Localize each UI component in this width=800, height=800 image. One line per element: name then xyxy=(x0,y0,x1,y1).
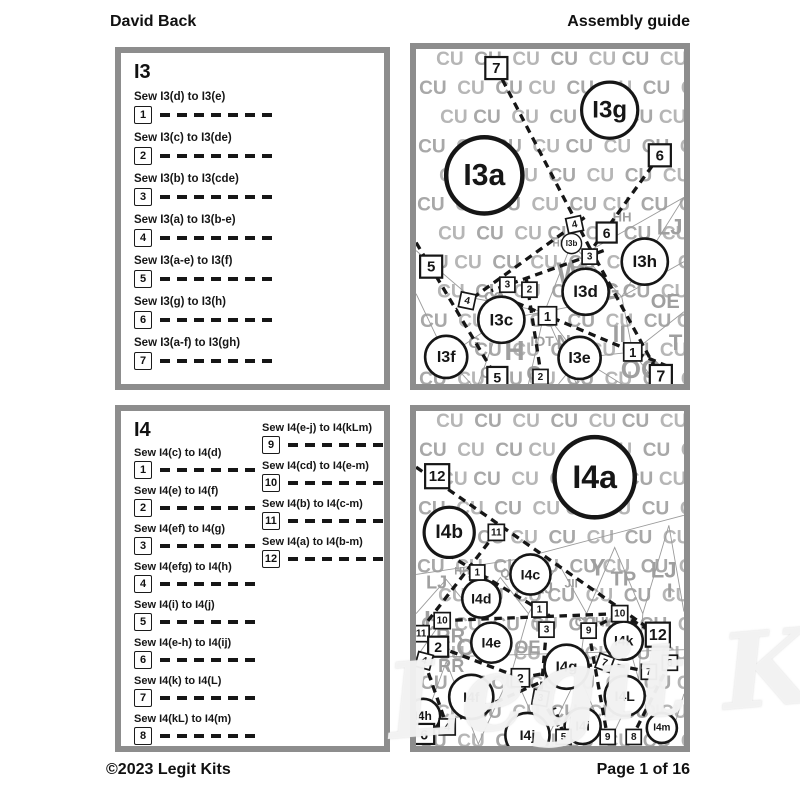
seam-number: 2 xyxy=(434,639,442,655)
bg-pattern-letter: CU xyxy=(549,107,577,128)
step-instruction: Sew I4(i) to I4(j) xyxy=(134,599,262,611)
sew-step: Sew I4(e) to I4(f)2 xyxy=(134,485,262,517)
seam-dash-sample xyxy=(160,582,255,586)
sew-step: Sew I4(cd) to I4(e-m)10 xyxy=(262,460,383,492)
document-title: Assembly guide xyxy=(567,13,690,31)
bg-pattern-letter: CU xyxy=(641,194,669,215)
i4-diagram-panel: CUCUCUCUCUCUCUCUCUCUCUCUCUCUCUCUCUCUCUCU… xyxy=(410,405,690,752)
step-instruction: Sew I3(d) to I3(e) xyxy=(134,91,376,103)
seam-dash-sample xyxy=(160,154,278,158)
seam-dash-sample xyxy=(160,359,278,363)
bg-piece-letter: LJ xyxy=(651,557,677,582)
seam-number-group: 3 xyxy=(500,277,515,292)
step-seam-row: 11 xyxy=(262,512,383,530)
step-seam-row: 5 xyxy=(134,270,376,288)
seam-number: 7 xyxy=(492,60,500,77)
seam-number-group: 1 xyxy=(532,602,547,617)
seam-number-group: 12 xyxy=(425,464,449,488)
i3-piecing-diagram: CUCUCUCUCUCUCUCUCUCUCUCUCUCUCUCUCUCUCUCU… xyxy=(416,49,684,384)
bg-piece-letter: Y xyxy=(590,554,606,581)
seam-number: 3 xyxy=(505,280,511,291)
bg-pattern-letter: CU xyxy=(551,411,579,432)
step-instruction: Sew I4(ef) to I4(g) xyxy=(134,523,262,535)
bg-pattern-letter: CU xyxy=(659,469,684,490)
step-number-box: 12 xyxy=(262,550,280,568)
seam-dash-sample xyxy=(160,236,278,240)
seam-dash-sample xyxy=(160,544,255,548)
bg-pattern-letter: CU xyxy=(457,78,485,99)
bg-pattern-letter: CU xyxy=(681,369,684,384)
sew-step: Sew I4(c) to I4(d)1 xyxy=(134,447,262,479)
bg-pattern-letter: CU xyxy=(476,224,504,245)
seam-number: 2 xyxy=(517,671,524,685)
step-instruction: Sew I4(e) to I4(f) xyxy=(134,485,262,497)
seam-number-group: 3 xyxy=(582,249,597,264)
step-instruction: Sew I3(a-e) to I3(f) xyxy=(134,255,376,267)
step-number-box: 6 xyxy=(134,651,152,669)
step-number-box: 8 xyxy=(134,727,152,745)
seam-number: 8 xyxy=(631,732,637,743)
sew-step: Sew I4(a) to I4(b-m)12 xyxy=(262,536,383,568)
piece-label: I4k xyxy=(614,633,634,649)
seam-number-group: 4 xyxy=(566,216,584,234)
seam-dash-sample xyxy=(160,506,255,510)
seam-number: 7 xyxy=(656,367,665,384)
bg-pattern-letter: CU xyxy=(681,731,684,746)
step-seam-row: 4 xyxy=(134,229,376,247)
bg-piece-letter: LJ xyxy=(657,215,683,240)
step-seam-row: 1 xyxy=(134,461,262,479)
seam-number: 9 xyxy=(586,626,592,637)
bg-pattern-letter: CU xyxy=(473,107,501,128)
sew-step: Sew I4(k) to I4(L)7 xyxy=(134,675,262,707)
step-instruction: Sew I4(efg) to I4(h) xyxy=(134,561,262,573)
sew-step: Sew I4(e-h) to I4(ij)6 xyxy=(134,637,262,669)
i4-piecing-diagram: CUCUCUCUCUCUCUCUCUCUCUCUCUCUCUCUCUCUCUCU… xyxy=(416,411,684,746)
step-instruction: Sew I4(e-j) to I4(kLm) xyxy=(262,422,383,434)
bg-pattern-letter: CU xyxy=(587,527,615,548)
bg-pattern-letter: CU xyxy=(643,78,671,99)
step-number-box: 9 xyxy=(262,436,280,454)
seam-number-group: 4 xyxy=(439,719,455,735)
step-instruction: Sew I4(k) to I4(L) xyxy=(134,675,262,687)
seam-number: 10 xyxy=(614,609,626,620)
seam-number-group: 6 xyxy=(597,223,617,243)
bg-pattern-letter: CU xyxy=(436,411,464,432)
seam-number: 1 xyxy=(629,345,636,360)
seam-number-group: 10 xyxy=(612,606,628,622)
sew-step: Sew I3(a-e) to I3(f)5 xyxy=(134,255,376,288)
piece-label: I4i xyxy=(575,718,589,733)
seam-number-group: 1 xyxy=(470,565,485,580)
bg-pattern-letter: CU xyxy=(659,107,684,128)
step-instruction: Sew I4(e-h) to I4(ij) xyxy=(134,637,262,649)
seam-number-group: 5 xyxy=(420,256,442,278)
bg-piece-letter: T xyxy=(669,330,683,355)
seam-number-group: 2 xyxy=(533,369,548,384)
bg-pattern-letter: CU xyxy=(681,440,684,461)
i3-diagram-panel: CUCUCUCUCUCUCUCUCUCUCUCUCUCUCUCUCUCUCUCU… xyxy=(410,43,690,390)
seam-number-group: 3 xyxy=(532,689,549,706)
seam-number: 2 xyxy=(538,372,544,383)
seam-dash-sample xyxy=(160,468,255,472)
step-instruction: Sew I3(g) to I3(h) xyxy=(134,296,376,308)
step-seam-row: 3 xyxy=(134,188,376,206)
i4-columns: I4 Sew I4(c) to I4(d)1Sew I4(e) to I4(f)… xyxy=(134,419,376,751)
bg-pattern-letter: CU xyxy=(677,673,684,694)
seam-number: 11 xyxy=(416,629,427,640)
seam-number-group: 8 xyxy=(626,729,641,744)
seam-number-group: 11 xyxy=(488,524,504,540)
step-instruction: Sew I4(c) to I4(d) xyxy=(134,447,262,459)
sew-step: Sew I3(b) to I3(cde)3 xyxy=(134,173,376,206)
seam-number-group: 8 xyxy=(662,655,677,670)
seam-number-group: 7 xyxy=(650,365,672,384)
bg-pattern-letter: CU xyxy=(644,311,672,332)
bg-pattern-letter: CU xyxy=(440,107,468,128)
seam-number: 5 xyxy=(427,259,435,276)
step-number-box: 6 xyxy=(134,311,152,329)
bg-pattern-letter: CU xyxy=(531,194,559,215)
piece-label: I3c xyxy=(490,310,514,329)
seam-number: 1 xyxy=(537,605,543,616)
seam-number-group: 12 xyxy=(646,623,670,647)
step-number-box: 3 xyxy=(134,188,152,206)
i4-left-column: I4 Sew I4(c) to I4(d)1Sew I4(e) to I4(f)… xyxy=(134,419,262,751)
bg-pattern-letter: CU xyxy=(678,615,684,636)
bg-pattern-letter: CU xyxy=(566,136,594,157)
piece-label: I3g xyxy=(592,97,627,124)
piece-label: I3e xyxy=(568,349,590,367)
piece-label: I4e xyxy=(482,635,502,651)
piece-label: I3f xyxy=(437,348,456,366)
piece-label: I4a xyxy=(572,459,618,495)
seam-number: 9 xyxy=(605,732,611,743)
bg-pattern-letter: CU xyxy=(680,136,684,157)
bg-pattern-letter: CU xyxy=(679,556,684,577)
bg-pattern-letter: CU xyxy=(512,49,540,70)
sew-step: Sew I4(e-j) to I4(kLm)9 xyxy=(262,422,383,454)
seam-number: 7 xyxy=(646,667,652,678)
seam-number-group: 5 xyxy=(487,367,507,384)
assembly-guide-page: David Back Assembly guide I3 Sew I3(d) t… xyxy=(0,0,800,800)
step-number-box: 10 xyxy=(262,474,280,492)
seam-number-group: 4 xyxy=(458,292,476,310)
seam-dash-sample xyxy=(160,696,255,700)
bg-pattern-letter: CU xyxy=(417,194,445,215)
step-number-box: 5 xyxy=(134,613,152,631)
step-number-box: 7 xyxy=(134,352,152,370)
step-instruction: Sew I4(kL) to I4(m) xyxy=(134,713,262,725)
step-seam-row: 10 xyxy=(262,474,383,492)
step-number-box: 4 xyxy=(134,229,152,247)
step-number-box: 1 xyxy=(134,461,152,479)
bg-pattern-letter: CU xyxy=(511,469,539,490)
seam-number: 6 xyxy=(420,726,428,742)
bg-pattern-letter: CU xyxy=(551,49,579,70)
bg-pattern-letter: CU xyxy=(457,440,485,461)
seam-number-group: 6 xyxy=(416,724,434,744)
seam-number: 8 xyxy=(667,658,673,669)
seam-number: 11 xyxy=(491,527,502,538)
step-number-box: 2 xyxy=(134,147,152,165)
i4-step-list-right: Sew I4(e-j) to I4(kLm)9Sew I4(cd) to I4(… xyxy=(262,419,383,751)
seam-dash-sample xyxy=(160,195,278,199)
piece-label: I3d xyxy=(573,282,598,301)
seam-number: 1 xyxy=(474,567,480,578)
seam-number-group: 2 xyxy=(428,637,448,657)
step-seam-row: 4 xyxy=(134,575,262,593)
seam-number: 4 xyxy=(444,721,451,733)
piece-label: I4b xyxy=(435,522,463,543)
step-instruction: Sew I3(a) to I3(b-e) xyxy=(134,214,376,226)
seam-number-group: 7 xyxy=(641,664,656,679)
bg-pattern-letter: CU xyxy=(510,527,538,548)
sew-step: Sew I3(a) to I3(b-e)4 xyxy=(134,214,376,247)
step-number-box: 3 xyxy=(134,537,152,555)
bg-pattern-letter: CU xyxy=(587,165,615,186)
seam-number-group: 7 xyxy=(485,57,507,79)
piece-label: I4d xyxy=(471,591,491,607)
bg-pattern-letter: CU xyxy=(494,498,522,519)
i4-instructions-panel: I4 Sew I4(c) to I4(d)1Sew I4(e) to I4(f)… xyxy=(115,405,390,752)
piece-label: I4g xyxy=(556,658,578,675)
bg-pattern-letter: CU xyxy=(622,49,650,70)
seam-number-group: 6 xyxy=(649,144,671,166)
bg-pattern-letter: CU xyxy=(436,49,464,70)
seam-dash-sample xyxy=(160,620,255,624)
step-seam-row: 7 xyxy=(134,352,376,370)
bg-pattern-letter: CU xyxy=(511,107,539,128)
bg-pattern-letter: CU xyxy=(420,311,448,332)
sew-step: Sew I3(a-f) to I3(gh)7 xyxy=(134,337,376,370)
sew-step: Sew I3(c) to I3(de)2 xyxy=(134,132,376,165)
step-number-box: 2 xyxy=(134,499,152,517)
piece-label: I4m xyxy=(653,722,670,733)
bg-pattern-letter: CU xyxy=(419,78,447,99)
step-instruction: Sew I3(b) to I3(cde) xyxy=(134,173,376,185)
sew-step: Sew I3(g) to I3(h)6 xyxy=(134,296,376,329)
bg-pattern-letter: CU xyxy=(532,136,560,157)
bg-pattern-letter: CU xyxy=(589,411,617,432)
page-number: Page 1 of 16 xyxy=(597,761,690,779)
step-seam-row: 3 xyxy=(134,537,262,555)
bg-pattern-letter: CU xyxy=(589,49,617,70)
step-instruction: Sew I4(a) to I4(b-m) xyxy=(262,536,383,548)
seam-number-group: 3 xyxy=(539,622,554,637)
bg-piece-letter: TP xyxy=(611,569,637,591)
bg-pattern-letter: CU xyxy=(495,440,523,461)
bg-piece-letter: OE xyxy=(651,291,680,313)
bg-pattern-letter: CU xyxy=(625,165,653,186)
seam-number-group: 1 xyxy=(624,343,642,361)
piece-label: I3h xyxy=(632,252,657,271)
step-number-box: 11 xyxy=(262,512,280,530)
piece-label: I4j xyxy=(520,727,536,743)
step-instruction: Sew I3(a-f) to I3(gh) xyxy=(134,337,376,349)
bg-pattern-letter: CU xyxy=(473,469,501,490)
seam-number: 5 xyxy=(561,732,567,743)
seam-number: 3 xyxy=(544,625,550,636)
piece-label: I3a xyxy=(463,159,505,192)
seam-dash-sample xyxy=(288,557,383,561)
seam-number-group: 1 xyxy=(538,307,556,325)
bg-pattern-letter: CU xyxy=(622,411,650,432)
step-seam-row: 9 xyxy=(262,436,383,454)
seam-dash-sample xyxy=(160,734,255,738)
seam-number: 1 xyxy=(544,309,551,324)
bg-pattern-letter: CU xyxy=(660,411,684,432)
step-number-box: 4 xyxy=(134,575,152,593)
bg-pattern-letter: CU xyxy=(454,253,482,274)
bg-pattern-letter: CU xyxy=(532,498,560,519)
step-number-box: 5 xyxy=(134,270,152,288)
seam-dash-sample xyxy=(160,277,278,281)
bg-pattern-letter: CU xyxy=(530,253,558,274)
i4-step-list-left: Sew I4(c) to I4(d)1Sew I4(e) to I4(f)2Se… xyxy=(134,447,262,745)
seam-dash-sample xyxy=(288,481,383,485)
bg-pattern-letter: CU xyxy=(528,78,556,99)
seam-number: 12 xyxy=(649,626,667,644)
piece-label: I4c xyxy=(521,566,541,582)
seam-number: 5 xyxy=(493,369,501,384)
seam-number-group: 10 xyxy=(434,613,450,629)
piece-label: I4L xyxy=(615,688,636,704)
bg-pattern-letter: CU xyxy=(681,78,684,99)
bg-pattern-letter: CU xyxy=(514,224,542,245)
sew-step: Sew I3(d) to I3(e)1 xyxy=(134,91,376,124)
bg-pattern-letter: CU xyxy=(625,527,653,548)
seam-dash-sample xyxy=(288,443,383,447)
step-instruction: Sew I4(b) to I4(c-m) xyxy=(262,498,383,510)
step-seam-row: 5 xyxy=(134,613,262,631)
bg-pattern-letter: CU xyxy=(438,224,466,245)
bg-pattern-letter: CU xyxy=(492,253,520,274)
bg-pattern-letter: CU xyxy=(474,411,502,432)
step-seam-row: 2 xyxy=(134,147,376,165)
sew-step: Sew I4(efg) to I4(h)4 xyxy=(134,561,262,593)
bg-piece-letter: I xyxy=(667,581,673,603)
seam-number-group: 2 xyxy=(522,282,537,297)
seam-number: 6 xyxy=(603,225,611,241)
step-seam-row: 7 xyxy=(134,689,262,707)
seam-number-group: 2 xyxy=(511,669,529,687)
copyright: ©2023 Legit Kits xyxy=(106,761,231,779)
bg-pattern-letter: CU xyxy=(662,586,684,607)
seam-number-group: 9 xyxy=(600,729,615,744)
bg-pattern-letter: CU xyxy=(663,165,684,186)
piece-label: I3b xyxy=(566,239,578,248)
piece-label: I4f xyxy=(463,689,480,705)
sew-step: Sew I4(kL) to I4(m)8 xyxy=(134,713,262,745)
bg-pattern-letter: CU xyxy=(419,440,447,461)
i3-section-title: I3 xyxy=(134,61,376,84)
seam-number-group: 5 xyxy=(556,729,571,744)
pattern-name: David Back xyxy=(110,13,196,31)
bg-pattern-letter: CU xyxy=(418,136,446,157)
bg-pattern-letter: CU xyxy=(570,194,598,215)
bg-pattern-letter: CU xyxy=(643,440,671,461)
step-seam-row: 12 xyxy=(262,550,383,568)
seam-number: 2 xyxy=(527,285,533,296)
step-seam-row: 2 xyxy=(134,499,262,517)
seam-number-group: 9 xyxy=(581,623,596,638)
bg-pattern-letter: CU xyxy=(512,411,540,432)
seam-dash-sample xyxy=(160,113,278,117)
step-instruction: Sew I3(c) to I3(de) xyxy=(134,132,376,144)
seam-dash-sample xyxy=(288,519,383,523)
seam-number: 12 xyxy=(429,468,446,485)
sew-step: Sew I4(b) to I4(c-m)11 xyxy=(262,498,383,530)
i3-instructions-panel: I3 Sew I3(d) to I3(e)1Sew I3(c) to I3(de… xyxy=(115,47,390,390)
bg-pattern-letter: CU xyxy=(528,440,556,461)
seam-number: 6 xyxy=(656,147,664,164)
step-seam-row: 1 xyxy=(134,106,376,124)
i4-section-title: I4 xyxy=(134,419,262,442)
i3-step-list: Sew I3(d) to I3(e)1Sew I3(c) to I3(de)2S… xyxy=(134,91,376,370)
step-seam-row: 6 xyxy=(134,311,376,329)
step-seam-row: 6 xyxy=(134,651,262,669)
step-number-box: 1 xyxy=(134,106,152,124)
sew-step: Sew I4(ef) to I4(g)3 xyxy=(134,523,262,555)
step-instruction: Sew I4(cd) to I4(e-m) xyxy=(262,460,383,472)
seam-number: 10 xyxy=(437,616,449,627)
bg-pattern-letter: CU xyxy=(663,527,684,548)
bg-pattern-letter: CU xyxy=(642,498,670,519)
piece-label: I4h xyxy=(416,709,432,723)
seam-dash-sample xyxy=(160,318,278,322)
seam-number-group: 4 xyxy=(416,652,433,670)
seam-number: 3 xyxy=(587,252,593,263)
seam-dash-sample xyxy=(160,658,255,662)
step-seam-row: 8 xyxy=(134,727,262,745)
step-number-box: 7 xyxy=(134,689,152,707)
sew-step: Sew I4(i) to I4(j)5 xyxy=(134,599,262,631)
bg-pattern-letter: CU xyxy=(660,49,684,70)
